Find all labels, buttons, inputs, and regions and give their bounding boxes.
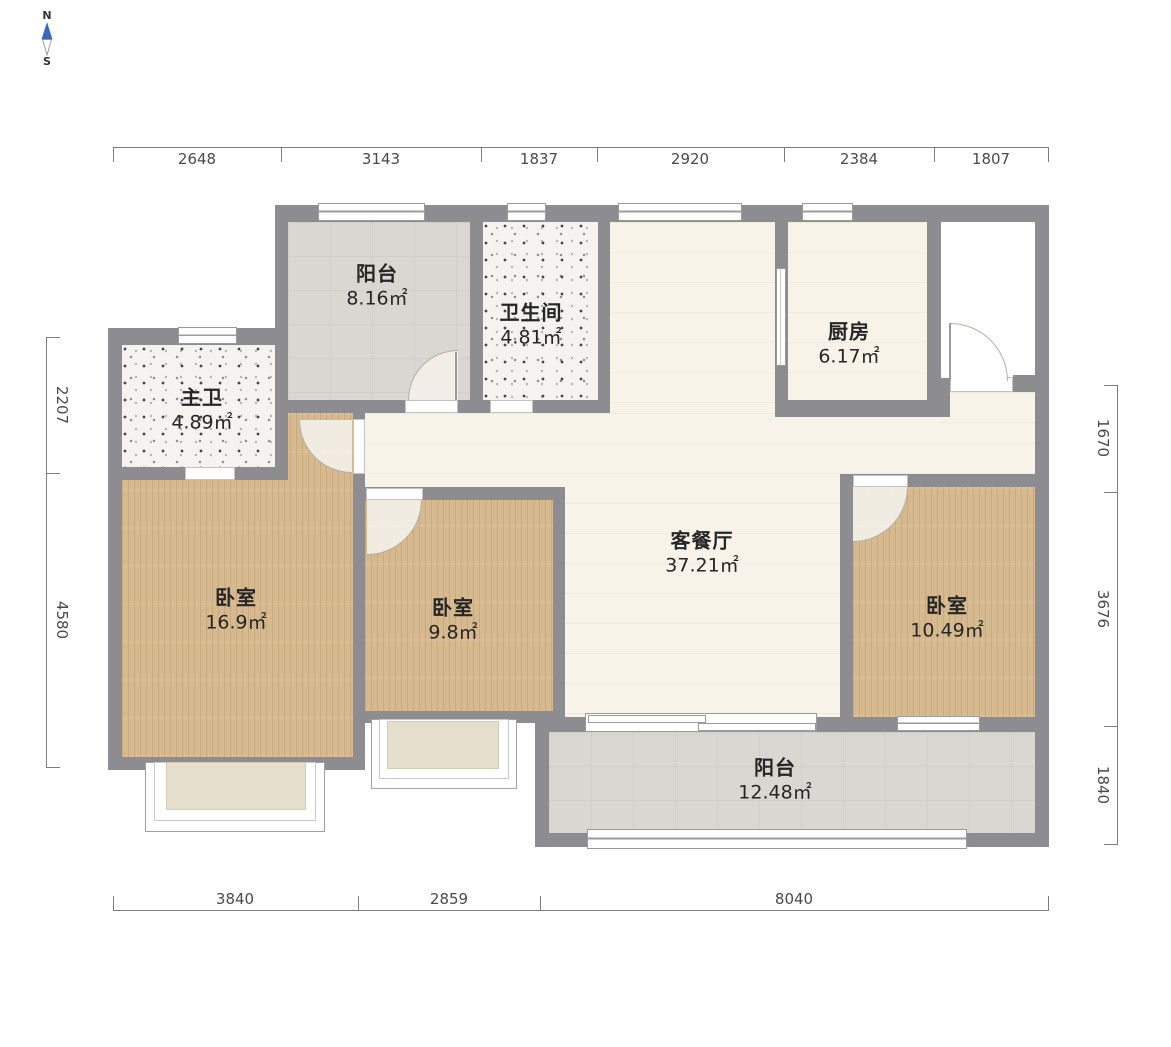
wall <box>470 222 483 413</box>
dimension-label: 2648 <box>178 150 216 168</box>
dim-tick <box>1104 726 1118 727</box>
dimension-label: 3676 <box>1094 590 1112 628</box>
dim-tick <box>597 147 598 162</box>
dim-tick <box>934 147 935 162</box>
door-leaf <box>949 323 951 381</box>
room-name: 卧室 <box>910 593 983 619</box>
dim-line <box>113 910 1049 911</box>
window <box>507 203 546 221</box>
window <box>318 203 425 221</box>
window <box>897 716 980 731</box>
room-area: 4.89㎡ <box>171 411 232 436</box>
dim-line <box>46 337 47 768</box>
wall <box>598 222 610 413</box>
room-area: 8.16㎡ <box>346 287 407 312</box>
dimension-label: 1807 <box>972 150 1010 168</box>
dimension-label: 1670 <box>1094 419 1112 457</box>
room-name: 卧室 <box>205 585 266 611</box>
dim-line <box>113 147 1049 148</box>
dimension-label: 2207 <box>53 386 71 424</box>
door-threshold <box>353 419 365 474</box>
dimension-label: 3143 <box>362 150 400 168</box>
room-name: 主卫 <box>171 385 232 411</box>
wall <box>1035 205 1049 847</box>
window <box>776 268 786 366</box>
window <box>587 829 967 849</box>
dim-tick <box>540 896 541 911</box>
wall <box>840 487 853 732</box>
room-label-bedroom-middle: 卧室 9.8㎡ <box>428 595 477 646</box>
room-name: 阳台 <box>738 755 811 781</box>
room-name: 卧室 <box>428 595 477 621</box>
sliding-door <box>585 713 817 732</box>
dim-tick <box>358 896 359 911</box>
wall <box>108 328 122 770</box>
dim-tick <box>1048 147 1049 162</box>
room-label-bathroom: 卫生间 4.81㎡ <box>500 300 563 351</box>
dim-tick <box>1104 492 1118 493</box>
dimension-label: 3840 <box>216 890 254 908</box>
dim-tick <box>113 147 114 162</box>
dim-tick <box>46 473 60 474</box>
room-name: 客餐厅 <box>665 528 738 554</box>
room-label-balcony-top: 阳台 8.16㎡ <box>346 261 407 312</box>
dim-tick <box>1104 385 1118 386</box>
window <box>802 203 853 221</box>
room-area: 9.8㎡ <box>428 621 477 646</box>
wall <box>775 400 941 417</box>
dim-tick <box>113 896 114 911</box>
compass-north-label: N <box>34 10 60 22</box>
wall <box>927 205 941 385</box>
door-threshold <box>366 488 423 500</box>
dim-tick <box>784 147 785 162</box>
room-area: 6.17㎡ <box>818 345 879 370</box>
room-area: 37.21㎡ <box>665 554 738 579</box>
room-label-bedroom-right: 卧室 10.49㎡ <box>910 593 983 644</box>
dimension-label: 2920 <box>671 150 709 168</box>
door-threshold <box>853 475 908 487</box>
dim-line <box>1117 385 1118 845</box>
room-area: 16.9㎡ <box>205 611 266 636</box>
dimension-label: 2859 <box>430 890 468 908</box>
compass-south-label: S <box>34 56 60 68</box>
dimension-label: 2384 <box>840 150 878 168</box>
dim-tick <box>46 337 60 338</box>
dimension-label: 4580 <box>53 601 71 639</box>
room-label-living-dining: 客餐厅 37.21㎡ <box>665 528 738 579</box>
room-area: 10.49㎡ <box>910 619 983 644</box>
compass-needle-icon <box>39 22 55 56</box>
room-label-master-bath: 主卫 4.89㎡ <box>171 385 232 436</box>
dim-tick <box>1048 896 1049 911</box>
door-swing-icon <box>950 323 1008 381</box>
wall <box>553 487 565 730</box>
sliding-door-panel <box>588 715 706 723</box>
door-threshold <box>185 467 235 480</box>
room-label-bedroom-left: 卧室 16.9㎡ <box>205 585 266 636</box>
room-name: 阳台 <box>346 261 407 287</box>
room-label-kitchen: 厨房 6.17㎡ <box>818 319 879 370</box>
dimension-label: 1837 <box>520 150 558 168</box>
living-dining-floor <box>610 222 775 413</box>
room-name: 厨房 <box>818 319 879 345</box>
dimension-label: 8040 <box>775 890 813 908</box>
wall <box>535 717 549 847</box>
sliding-door-panel <box>698 723 816 731</box>
dim-tick <box>46 767 60 768</box>
window <box>178 327 237 344</box>
dim-tick <box>281 147 282 162</box>
room-area: 12.48㎡ <box>738 781 811 806</box>
wall <box>275 205 288 480</box>
room-name: 卫生间 <box>500 300 563 326</box>
bay-window-sill <box>387 721 499 769</box>
door-threshold <box>490 400 533 413</box>
door-threshold <box>405 400 458 413</box>
bay-window-sill <box>166 762 306 810</box>
living-dining-floor <box>941 392 1035 432</box>
dim-tick <box>481 147 482 162</box>
room-area: 4.81㎡ <box>500 326 563 351</box>
dimension-label: 1840 <box>1094 766 1112 804</box>
kitchen-floor <box>788 222 927 413</box>
compass: N S <box>34 10 60 68</box>
floor-plan-canvas: N S <box>0 0 1171 1047</box>
dim-tick <box>1104 844 1118 845</box>
window <box>618 203 742 221</box>
door-leaf <box>455 352 457 400</box>
room-label-balcony-bottom: 阳台 12.48㎡ <box>738 755 811 806</box>
